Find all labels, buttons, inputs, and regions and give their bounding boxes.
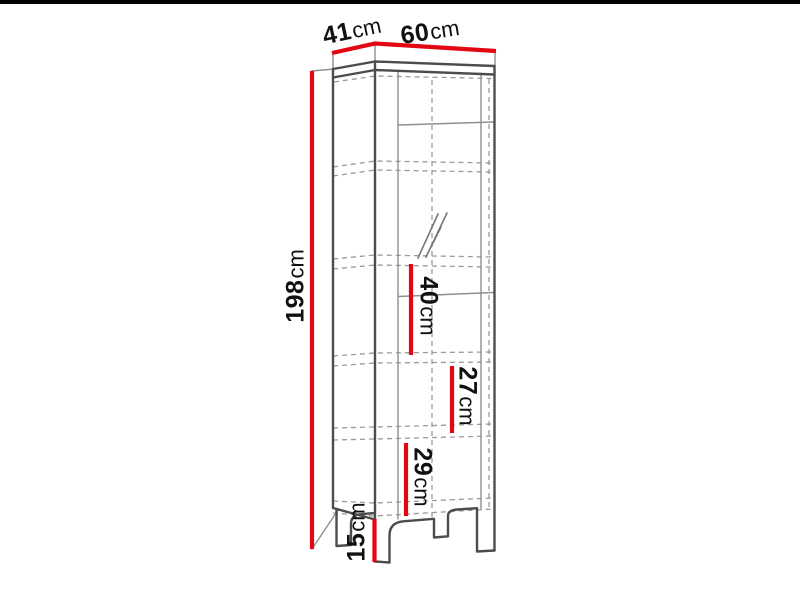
glass-section-unit: cm bbox=[415, 306, 441, 335]
middle-section-unit: cm bbox=[454, 396, 480, 425]
middle-section-dimension-label: 27cm bbox=[453, 366, 482, 425]
width-value: 60 bbox=[399, 18, 432, 51]
dimension-lines-red bbox=[312, 44, 496, 563]
middle-section-value: 27 bbox=[453, 366, 482, 395]
cabinet-line-drawing bbox=[0, 0, 800, 600]
furniture-dimension-diagram: 41cm 60cm 198cm 40cm 27cm 29cm 15cm bbox=[0, 0, 800, 600]
leg-height-dimension-label: 15cm bbox=[343, 502, 372, 561]
leg-height-unit: cm bbox=[345, 502, 371, 531]
lower-section-unit: cm bbox=[409, 477, 435, 506]
glass-section-value: 40 bbox=[414, 276, 443, 305]
lower-section-dimension-label: 29cm bbox=[408, 447, 437, 506]
depth-unit: cm bbox=[350, 13, 384, 45]
height-unit: cm bbox=[284, 249, 310, 278]
width-unit: cm bbox=[428, 15, 461, 45]
leg-height-value: 15 bbox=[343, 533, 372, 562]
lower-section-value: 29 bbox=[408, 447, 437, 476]
glass-section-dimension-label: 40cm bbox=[414, 276, 443, 335]
depth-value: 41 bbox=[320, 17, 354, 51]
height-value: 198 bbox=[282, 280, 311, 323]
height-dimension-label: 198cm bbox=[282, 249, 311, 323]
